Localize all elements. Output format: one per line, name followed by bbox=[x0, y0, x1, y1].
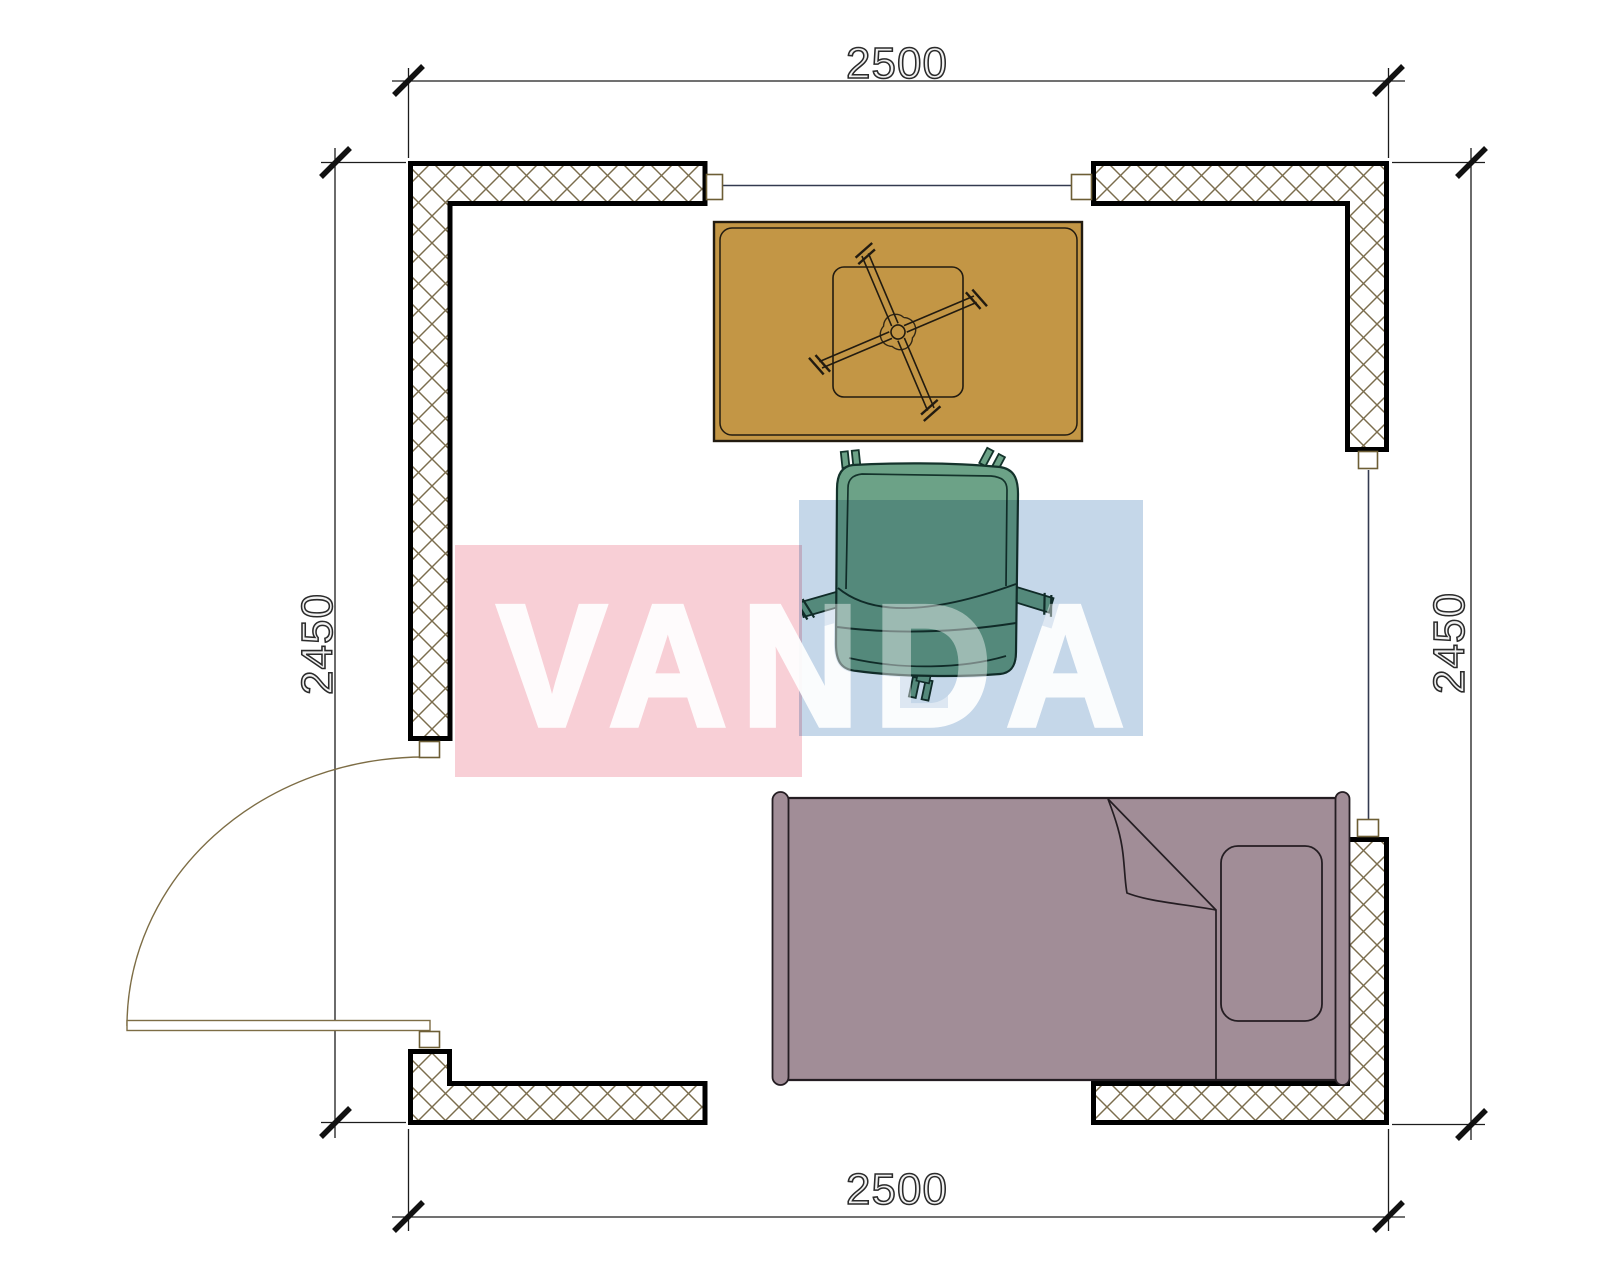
svg-text:2500: 2500 bbox=[846, 39, 948, 88]
svg-text:2500: 2500 bbox=[846, 1165, 948, 1214]
svg-text:VANDA: VANDA bbox=[498, 571, 1139, 762]
svg-text:2450: 2450 bbox=[293, 593, 342, 695]
svg-text:2450: 2450 bbox=[1425, 592, 1474, 694]
